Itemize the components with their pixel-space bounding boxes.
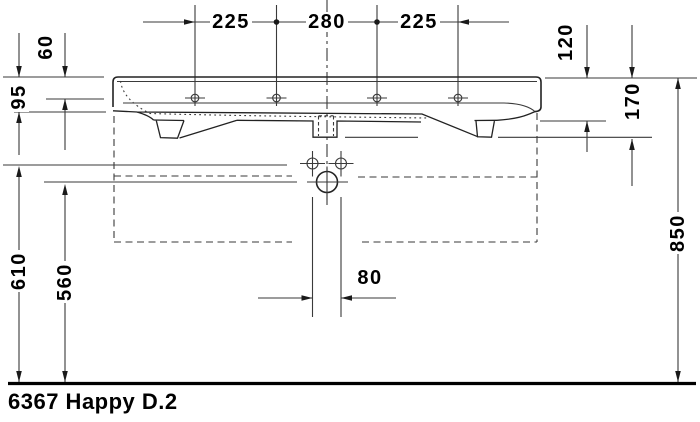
dim-label-rim-height: 850 [667,214,689,252]
dim-label-rim-to-underside: 120 [555,23,577,61]
dim-label-drain-height: 560 [54,263,76,301]
dim-label-rim-to-lowest: 170 [622,82,644,120]
dim-label-tap-right: 225 [400,11,438,33]
dim-label-tap-center: 280 [308,11,346,33]
dimension-lines [3,5,697,382]
drain-outlet-marker [307,167,348,201]
washbasin-dimension-drawing: 225 280 225 60 95 610 560 120 170 850 80… [0,0,700,422]
dim-label-tap-left: 225 [212,11,250,33]
drawing-title: 6367 Happy D.2 [8,389,178,414]
dim-label-fixing-height: 610 [8,252,30,290]
dim-label-apron-height: 95 [8,84,30,109]
technical-drawing-page: 225 280 225 60 95 610 560 120 170 850 80… [0,0,700,422]
dim-label-drain-offset: 80 [357,267,382,289]
dim-label-rim-to-tap: 60 [35,34,57,59]
